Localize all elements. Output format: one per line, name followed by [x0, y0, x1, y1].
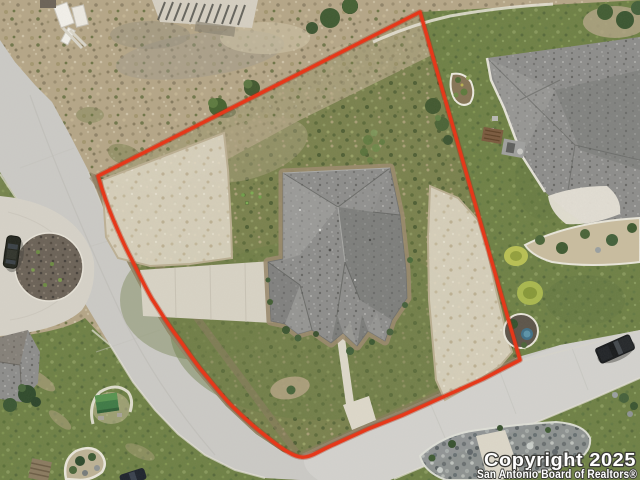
photo-grain-overlay	[0, 0, 640, 480]
copyright-watermark: Copyright 2025 San Antonio Board of Real…	[477, 450, 637, 480]
aerial-photo: Copyright 2025 San Antonio Board of Real…	[0, 0, 640, 480]
copyright-line2: San Antonio Board of Realtors®	[477, 467, 637, 480]
aerial-photo-canvas: Copyright 2025 San Antonio Board of Real…	[0, 0, 640, 480]
